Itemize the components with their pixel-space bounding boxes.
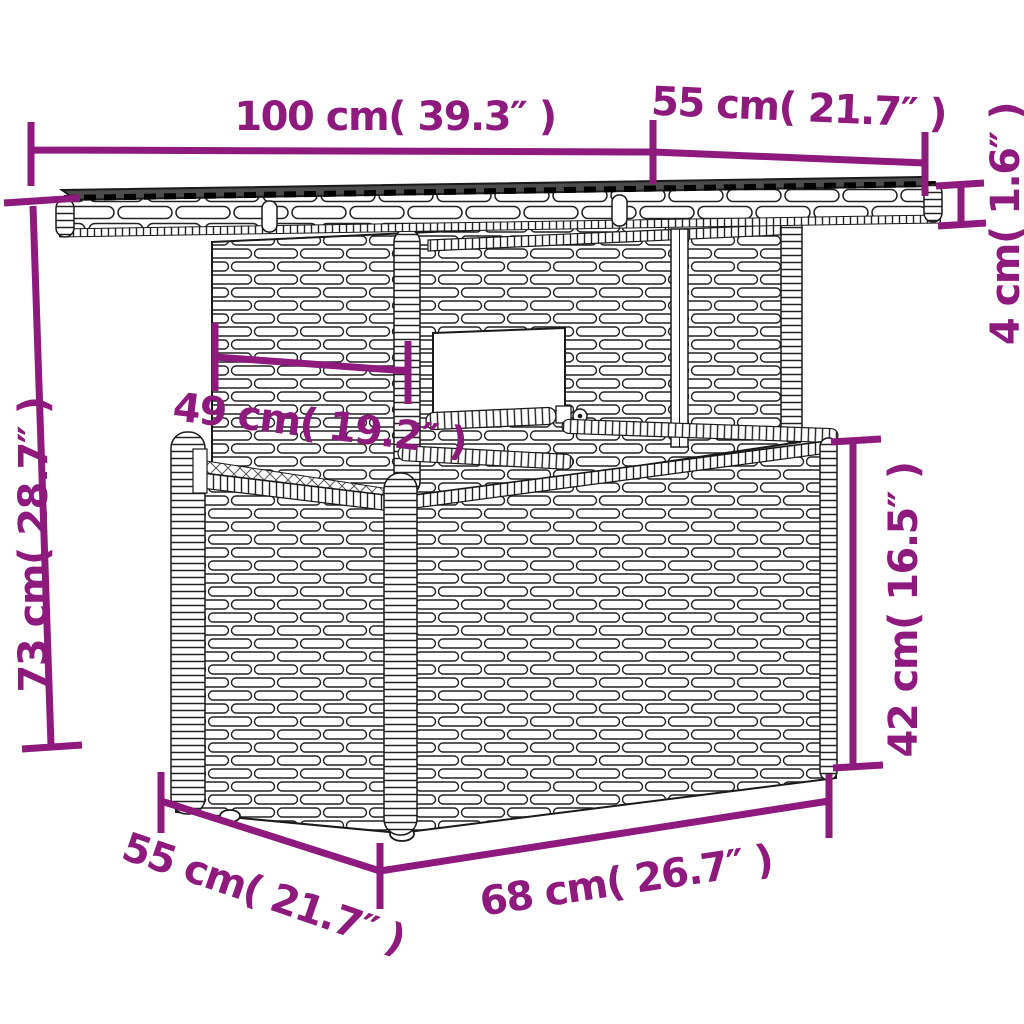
dim-base-depth-label: 55 cm( 21.7″ ) xyxy=(116,824,410,964)
dim-top-width-label: 100 cm( 39.3″ ) xyxy=(234,94,555,140)
table-top xyxy=(56,177,942,237)
garden-table-dimension-diagram: 100 cm( 39.3″ ) 55 cm( 21.7″ ) 4 cm( 1.6… xyxy=(0,0,1024,1024)
dim-total-height: 73 cm( 28.7″ ) xyxy=(4,198,82,749)
dim-base-height: 42 cm( 16.5″ ) xyxy=(831,439,927,768)
base-front-face xyxy=(176,470,400,833)
pedestal-right-corner-post xyxy=(781,215,802,442)
pedestal-window-opening xyxy=(433,328,565,419)
dim-base-height-label: 42 cm( 16.5″ ) xyxy=(881,463,927,758)
tabletop-left-end-cap xyxy=(56,199,74,237)
dim-top-depth-label: 55 cm( 21.7″ ) xyxy=(650,79,947,138)
base-right-corner-post xyxy=(820,438,837,780)
tabletop-post-b xyxy=(612,195,627,226)
dim-top-width: 100 cm( 39.3″ ) xyxy=(31,94,653,186)
base-inner-post xyxy=(193,449,207,493)
table-base xyxy=(171,432,837,841)
dimension-diagram-page: 100 cm( 39.3″ ) 55 cm( 21.7″ ) 4 cm( 1.6… xyxy=(0,0,1024,1024)
base-near-corner-post xyxy=(384,473,417,835)
dim-base-height-line xyxy=(831,439,883,768)
dim-top-thickness: 4 cm( 1.6″ ) xyxy=(936,103,1024,345)
dim-top-thickness-bracket xyxy=(936,183,986,226)
dim-total-height-label: 73 cm( 28.7″ ) xyxy=(11,398,57,693)
sill-bolt-center xyxy=(578,414,583,419)
dim-top-thickness-label: 4 cm( 1.6″ ) xyxy=(983,103,1024,345)
tabletop-post-a xyxy=(262,201,277,232)
